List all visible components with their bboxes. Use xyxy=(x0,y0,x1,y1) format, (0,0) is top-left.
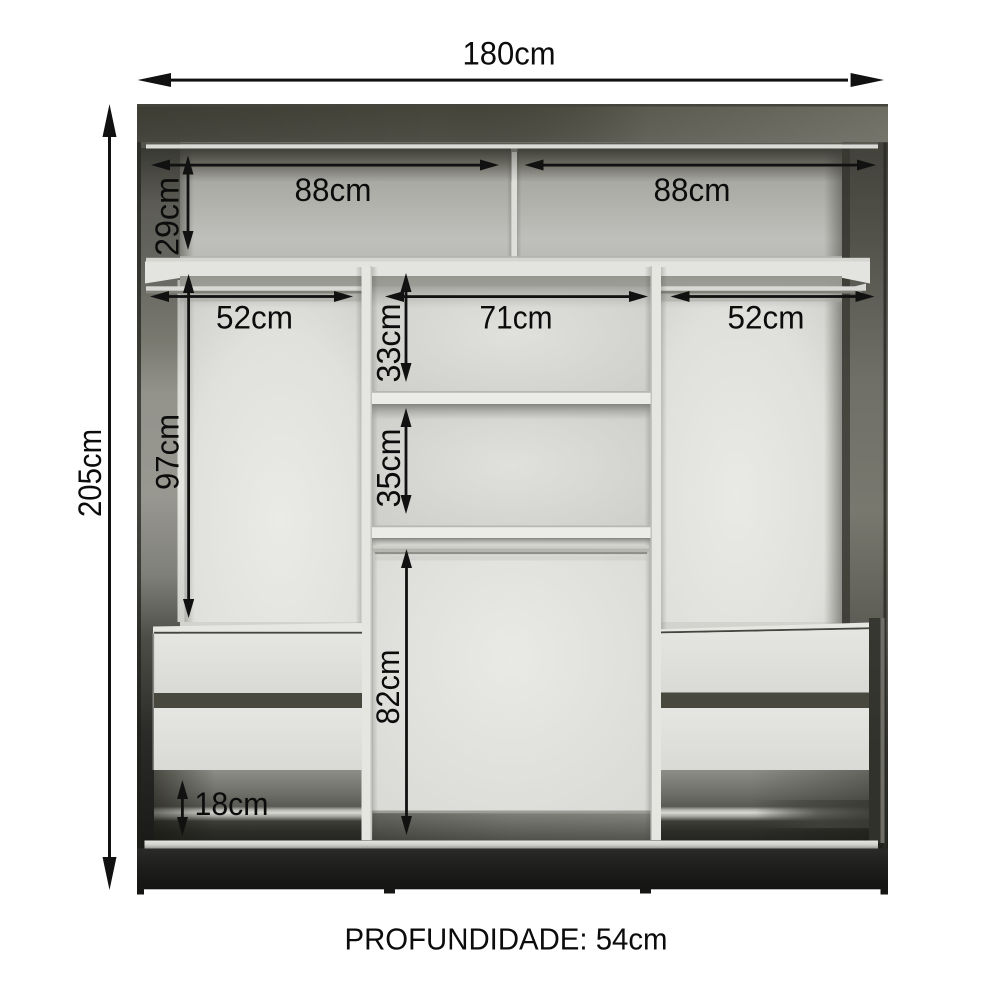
svg-text:PROFUNDIDADE: 54cm: PROFUNDIDADE: 54cm xyxy=(345,922,668,957)
svg-text:88cm: 88cm xyxy=(295,172,372,208)
svg-text:52cm: 52cm xyxy=(216,300,293,336)
svg-text:35cm: 35cm xyxy=(370,429,407,508)
svg-text:97cm: 97cm xyxy=(150,414,186,490)
svg-text:88cm: 88cm xyxy=(654,172,731,208)
svg-text:52cm: 52cm xyxy=(728,300,805,336)
svg-text:71cm: 71cm xyxy=(480,300,553,336)
svg-text:180cm: 180cm xyxy=(463,36,556,72)
svg-text:29cm: 29cm xyxy=(149,177,186,256)
svg-text:18cm: 18cm xyxy=(195,786,269,822)
svg-text:33cm: 33cm xyxy=(370,304,407,383)
svg-text:205cm: 205cm xyxy=(72,429,108,517)
svg-text:82cm: 82cm xyxy=(370,650,406,725)
